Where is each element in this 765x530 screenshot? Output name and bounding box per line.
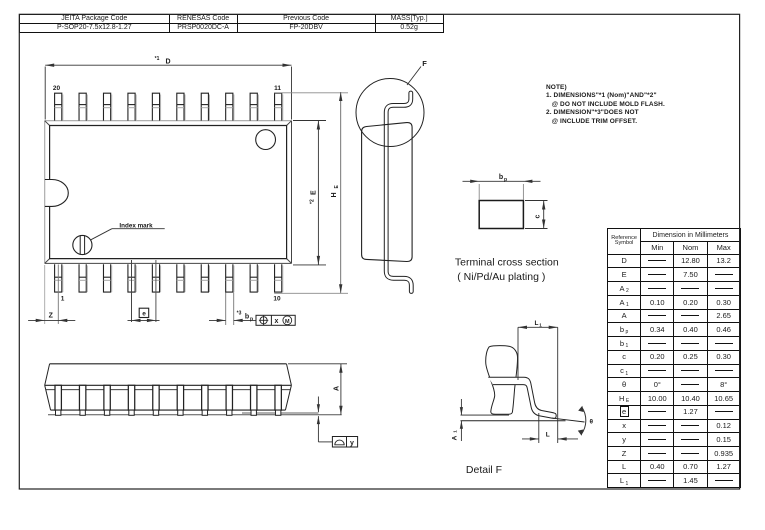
svg-text:L: L [535,320,539,327]
svg-text:A: A [334,386,341,391]
svg-text:b: b [245,314,249,321]
svg-text:10: 10 [273,296,281,303]
svg-text:20: 20 [53,85,61,92]
svg-text:1: 1 [539,323,542,328]
svg-text:H: H [331,192,338,197]
svg-text:F: F [422,59,427,68]
svg-text:y: y [350,440,354,447]
svg-text:*1: *1 [155,56,160,62]
svg-text:Detail F: Detail F [466,464,502,476]
svg-text:Terminal cross section: Terminal cross section [455,257,559,269]
svg-text:p: p [250,317,253,323]
svg-text:c: c [535,214,542,218]
svg-text:11: 11 [274,85,281,92]
svg-text:A: A [452,435,459,440]
svg-text:θ: θ [590,419,594,426]
svg-text:1: 1 [61,296,65,303]
svg-text:x: x [275,318,279,325]
svg-text:M: M [285,319,290,325]
svg-text:Index mark: Index mark [119,222,153,229]
svg-text:L: L [546,432,550,439]
svg-text:*2: *2 [309,199,315,204]
svg-text:1: 1 [453,430,458,433]
svg-text:b: b [499,174,503,181]
svg-text:*3: *3 [237,311,242,317]
svg-text:D: D [165,59,170,66]
svg-text:E: E [334,184,340,188]
svg-text:E: E [310,190,317,195]
svg-text:Z: Z [49,313,54,320]
svg-text:( Ni/Pd/Au plating ): ( Ni/Pd/Au plating ) [457,271,545,283]
svg-text:e: e [142,311,146,318]
svg-text:p: p [504,177,507,183]
